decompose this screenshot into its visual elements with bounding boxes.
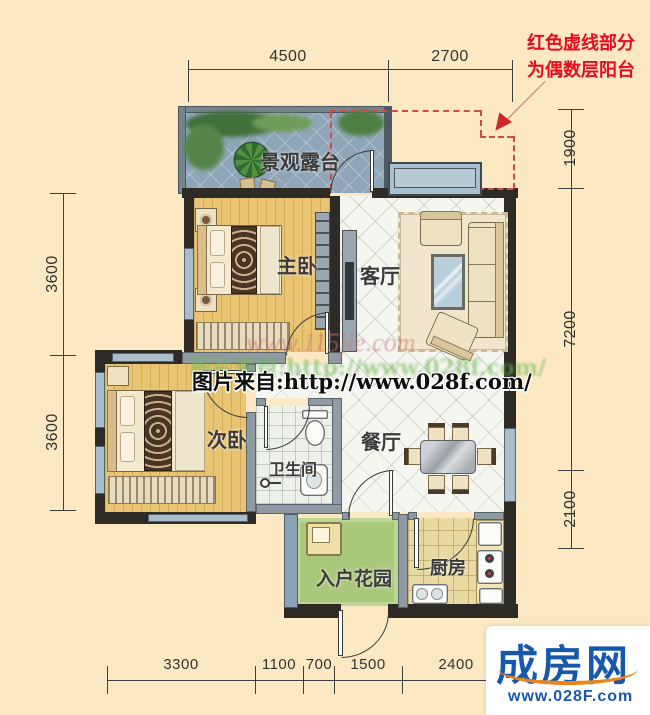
- wall-bathroom-bottom: [256, 504, 342, 514]
- dim-right-7200: 7200: [562, 299, 580, 359]
- label-terrace: 景观露台: [250, 146, 350, 175]
- window-dining-right: [504, 428, 516, 502]
- kitchen-appliance: [478, 522, 502, 546]
- label-entry-garden: 入户花园: [312, 564, 396, 591]
- second-rug: [108, 476, 216, 504]
- kitchen-door-leaf: [414, 518, 419, 568]
- nightstand: [107, 366, 129, 386]
- table-lamp-icon: [200, 294, 212, 306]
- label-second-bedroom: 次卧: [202, 424, 252, 453]
- dim-line-left: [63, 193, 64, 510]
- stove: [477, 550, 503, 584]
- dim-tick: [402, 666, 403, 694]
- kitchen-small-sink: [479, 588, 503, 604]
- pillow: [120, 396, 135, 426]
- balcony-dash-line: [480, 136, 513, 138]
- wall-bathroom-right: [332, 398, 342, 512]
- dim-top-2700: 2700: [413, 48, 487, 66]
- dim-tick: [558, 109, 584, 110]
- balcony-dash-line: [330, 110, 480, 112]
- label-dining-room: 餐厅: [356, 426, 406, 455]
- kitchen-sink-basin: [416, 588, 428, 600]
- dim-line-bottom: [107, 680, 510, 681]
- label-bathroom: 卫生间: [260, 456, 326, 480]
- wall-garden-left: [284, 514, 298, 608]
- terrace-plants: [184, 124, 224, 170]
- wall-top: [182, 188, 330, 198]
- toilet-bowl: [305, 420, 325, 446]
- annotation-leader-line: [505, 81, 546, 122]
- master-bed-headboard: [197, 225, 207, 295]
- dim-top-4500: 4500: [251, 48, 325, 66]
- balcony-annotation-line2: 为偶数层阳台: [527, 57, 635, 84]
- entry-door-arc: [341, 612, 389, 658]
- entry-door-leaf: [338, 610, 343, 656]
- dim-tick: [558, 188, 584, 189]
- dim-tick: [388, 60, 389, 102]
- garden-door-leaf: [389, 470, 393, 516]
- window-master-left: [184, 248, 194, 320]
- pillow: [120, 432, 135, 462]
- logo-swoosh-icon: [498, 653, 638, 685]
- sofa-back: [495, 222, 504, 338]
- kitchen-sink-basin: [431, 588, 443, 600]
- dim-tick: [512, 60, 513, 102]
- wall-kitchen-top: [474, 512, 504, 520]
- pillow: [210, 230, 225, 256]
- label-kitchen: 厨房: [426, 554, 470, 580]
- master-bed-runner: [231, 226, 257, 294]
- balcony-annotation-line1: 红色虚线部分: [527, 30, 635, 57]
- dim-line-top: [188, 69, 512, 70]
- terrace-door-leaf: [370, 150, 374, 192]
- dim-tick: [188, 60, 189, 102]
- window-bedroom2-left: [95, 446, 105, 494]
- dining-chair: [452, 475, 469, 494]
- wall-bathroom-top: [256, 398, 266, 406]
- tv-icon: [345, 262, 354, 320]
- dim-bottom-700: 700: [297, 656, 341, 673]
- dim-right-1900: 1900: [562, 118, 580, 178]
- window-bedroom2-bottom: [148, 514, 248, 522]
- bay-window-inner: [394, 168, 476, 188]
- dim-left-3600-lower: 3600: [44, 402, 62, 462]
- dim-tick: [50, 355, 76, 356]
- wall-garden-kitchen: [398, 514, 408, 608]
- coffee-table: [431, 254, 465, 310]
- dim-bottom-1500: 1500: [340, 656, 396, 673]
- dining-table: [420, 440, 476, 474]
- dim-bottom-3300: 3300: [146, 656, 216, 673]
- second-bed-runner: [144, 391, 172, 471]
- dim-right-2100: 2100: [562, 479, 580, 539]
- dim-tick: [50, 510, 76, 511]
- dim-left-3600-upper: 3600: [44, 244, 62, 304]
- dining-chair: [428, 475, 445, 494]
- pillow: [210, 262, 225, 288]
- logo-url: www.028F.com: [508, 688, 633, 706]
- label-master-bedroom: 主卧: [272, 250, 322, 279]
- dim-bottom-2400: 2400: [426, 656, 486, 673]
- dim-tick: [558, 470, 584, 471]
- floor-plan-canvas: 景观露台 主卧 客厅 次卧 卫生间 餐厅 入户花园 厨房 红色虚线部分 为偶数层…: [0, 0, 650, 715]
- watermark-source: 图片来自:http://www.028f.com/: [192, 366, 532, 396]
- window-bedroom2-left: [95, 372, 105, 428]
- balcony-dash-line: [480, 110, 482, 136]
- second-bed-blanket: [175, 391, 205, 471]
- balcony-dash-line: [513, 136, 515, 189]
- dining-chair: [477, 448, 496, 465]
- garden-cabinet-inner: [312, 527, 330, 543]
- dim-tick: [107, 666, 108, 694]
- window-notch-wall: [112, 353, 174, 362]
- terrace-plants: [338, 110, 384, 136]
- label-living-room: 客厅: [355, 260, 405, 289]
- shower-arm-icon: [269, 482, 281, 484]
- dim-tick: [50, 193, 76, 194]
- armchair-back: [420, 211, 462, 220]
- bathroom-door-leaf: [264, 406, 268, 448]
- second-bed-headboard: [107, 390, 117, 472]
- dim-tick: [558, 548, 584, 549]
- terrace-plants: [252, 114, 312, 132]
